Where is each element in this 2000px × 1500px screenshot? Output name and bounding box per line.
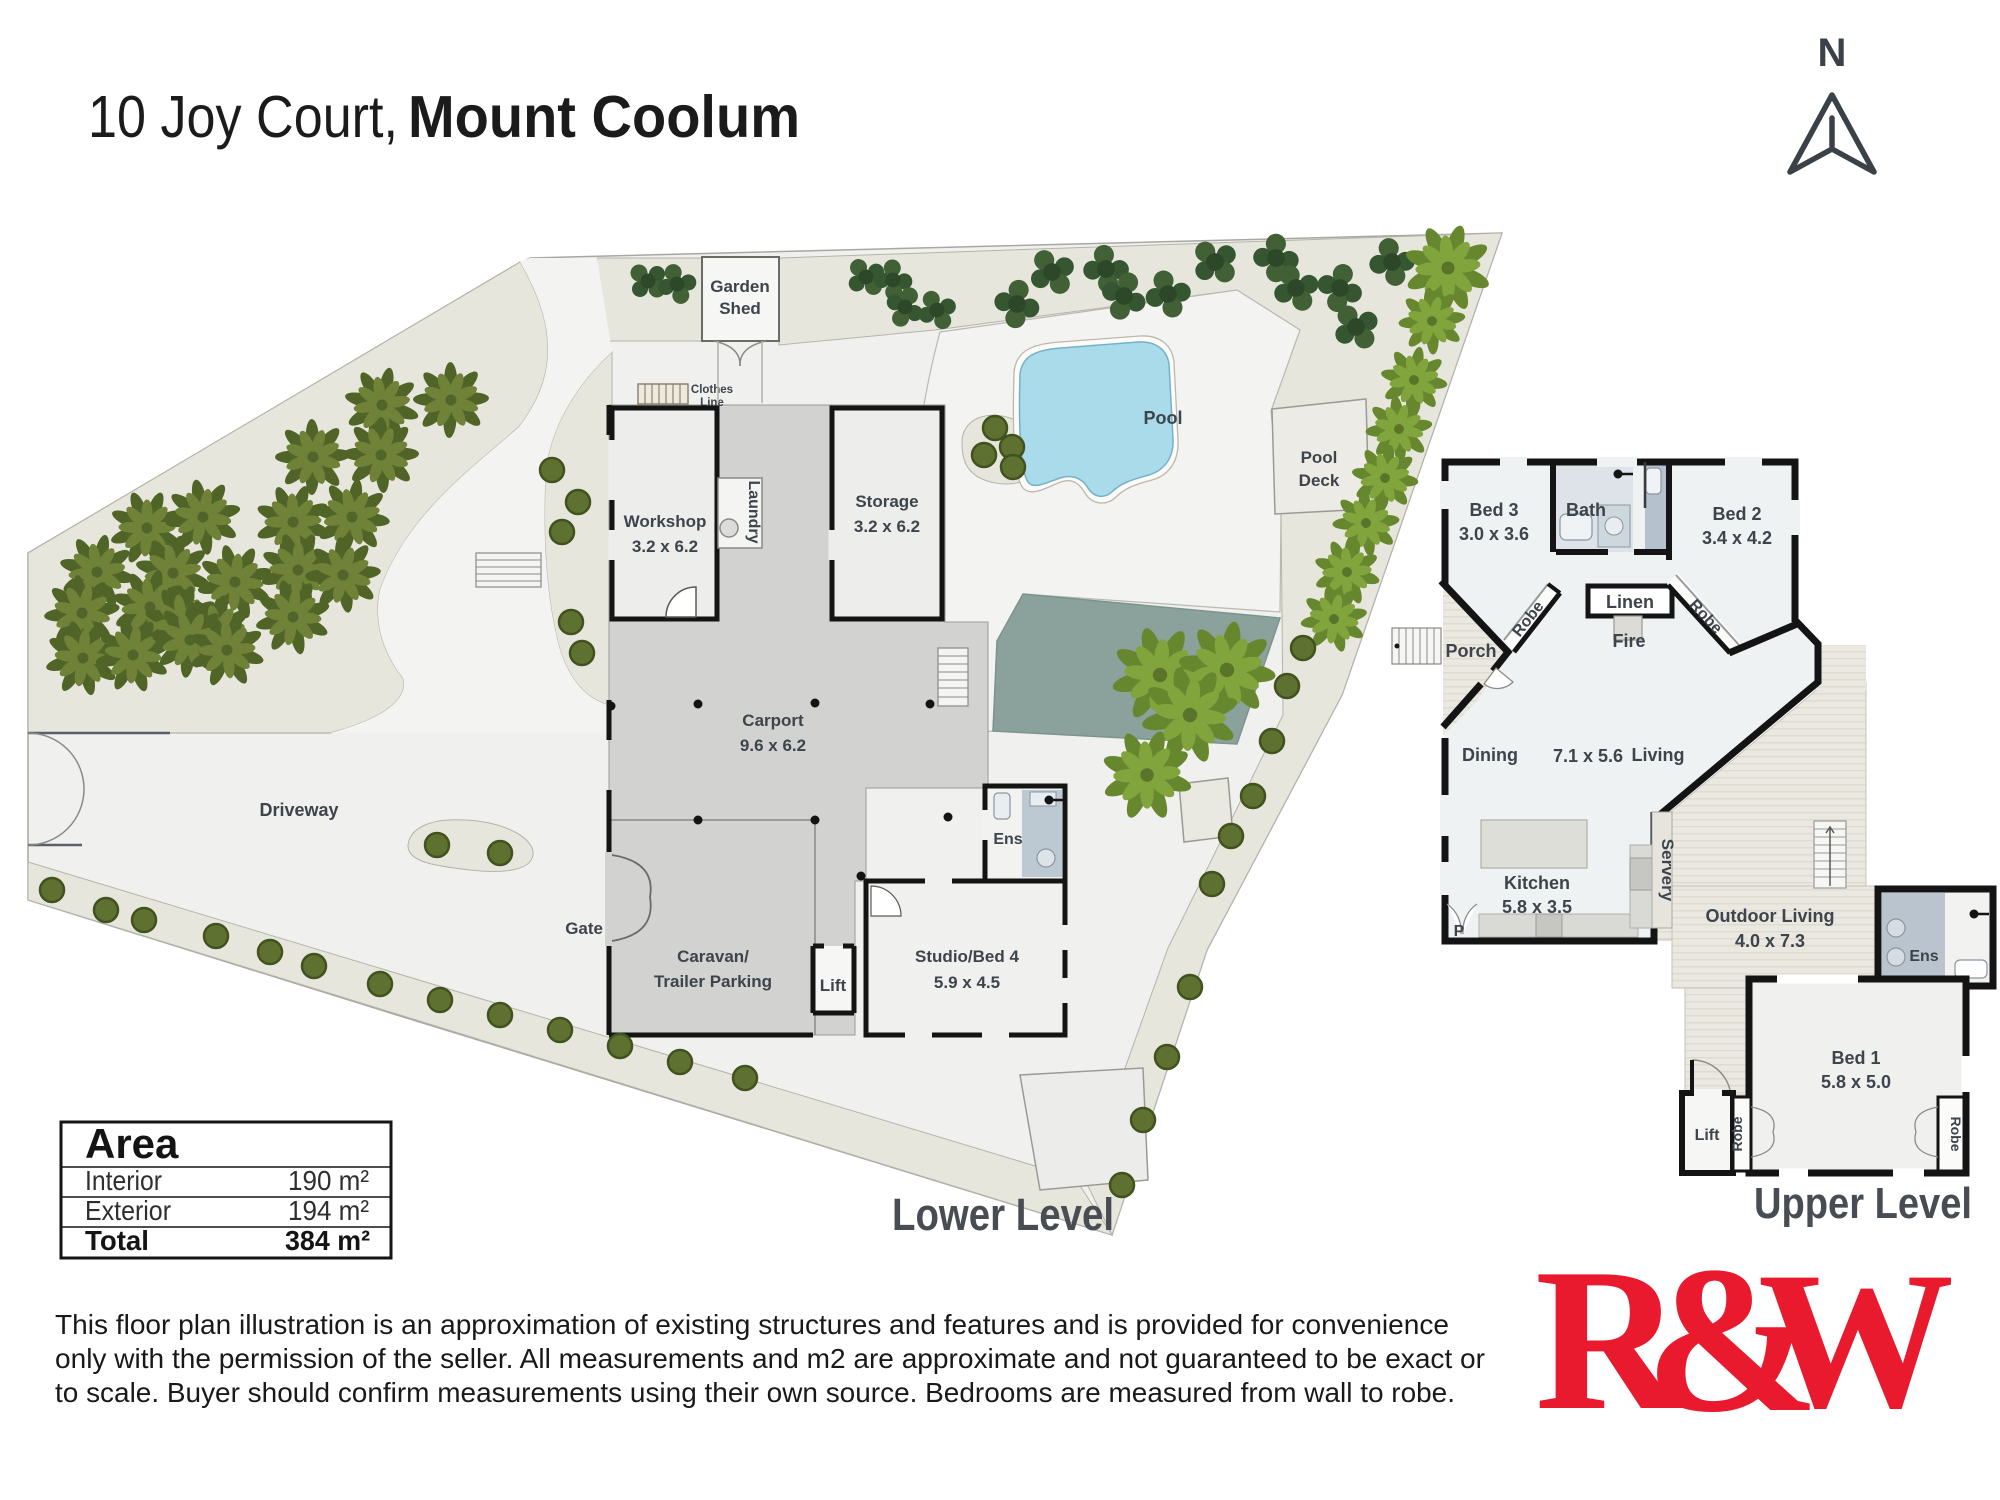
svg-text:Servery: Servery xyxy=(1658,839,1677,902)
svg-text:Ens: Ens xyxy=(993,831,1022,848)
svg-text:Clothes: Clothes xyxy=(691,384,733,396)
svg-text:Bed 2: Bed 2 xyxy=(1712,504,1761,524)
svg-text:Ens: Ens xyxy=(1909,948,1938,965)
svg-text:7.1 x 5.6: 7.1 x 5.6 xyxy=(1553,746,1623,766)
svg-text:Workshop: Workshop xyxy=(624,512,707,531)
svg-text:3.2 x 6.2: 3.2 x 6.2 xyxy=(632,537,698,556)
svg-text:190 m²: 190 m² xyxy=(288,1165,369,1196)
svg-text:Mount Coolum: Mount Coolum xyxy=(408,84,800,150)
svg-text:Fire: Fire xyxy=(1612,631,1645,651)
svg-text:Outdoor Living: Outdoor Living xyxy=(1706,906,1835,926)
svg-text:384 m²: 384 m² xyxy=(285,1225,370,1256)
svg-text:Trailer Parking: Trailer Parking xyxy=(654,972,772,991)
svg-text:Bath: Bath xyxy=(1566,500,1606,520)
svg-text:Lower Level: Lower Level xyxy=(892,1189,1114,1240)
svg-text:194 m²: 194 m² xyxy=(288,1195,369,1226)
svg-text:N: N xyxy=(1818,31,1847,75)
svg-text:Shed: Shed xyxy=(719,299,761,318)
svg-text:Exterior: Exterior xyxy=(85,1195,171,1226)
svg-text:Total: Total xyxy=(85,1225,149,1256)
svg-text:Area: Area xyxy=(85,1120,179,1167)
svg-text:Dining: Dining xyxy=(1462,745,1518,765)
svg-text:only with the permission of th: only with the permission of the seller. … xyxy=(55,1343,1485,1374)
svg-text:Deck: Deck xyxy=(1299,471,1340,490)
svg-text:to scale. Buyer should confirm: to scale. Buyer should confirm measureme… xyxy=(55,1377,1455,1408)
svg-text:Lift: Lift xyxy=(820,976,847,995)
svg-text:Lift: Lift xyxy=(1695,1127,1721,1144)
svg-text:Driveway: Driveway xyxy=(259,800,338,820)
svg-text:9.6 x 6.2: 9.6 x 6.2 xyxy=(740,736,806,755)
svg-text:Upper Level: Upper Level xyxy=(1754,1179,1972,1228)
svg-text:Storage: Storage xyxy=(855,492,918,511)
svg-text:W: W xyxy=(1758,1232,1954,1449)
svg-text:Carport: Carport xyxy=(742,711,804,730)
svg-text:Interior: Interior xyxy=(85,1165,162,1196)
svg-text:5.9 x 4.5: 5.9 x 4.5 xyxy=(934,973,1000,992)
svg-text:Robe: Robe xyxy=(1948,1117,1964,1152)
svg-text:This floor plan illustration i: This floor plan illustration is an appro… xyxy=(55,1309,1449,1340)
svg-text:Kitchen: Kitchen xyxy=(1504,873,1570,893)
svg-text:10 Joy Court,: 10 Joy Court, xyxy=(88,84,398,150)
svg-text:Pool: Pool xyxy=(1144,408,1183,428)
svg-text:5.8 x 5.0: 5.8 x 5.0 xyxy=(1821,1072,1891,1092)
svg-text:3.2 x 6.2: 3.2 x 6.2 xyxy=(854,517,920,536)
svg-text:Bed 3: Bed 3 xyxy=(1469,500,1518,520)
svg-text:Pool: Pool xyxy=(1301,448,1338,467)
svg-text:Bed 1: Bed 1 xyxy=(1831,1048,1880,1068)
svg-text:5.8 x 3.5: 5.8 x 3.5 xyxy=(1502,897,1572,917)
svg-text:Living: Living xyxy=(1632,745,1685,765)
svg-text:Caravan/: Caravan/ xyxy=(677,947,749,966)
svg-text:Robe: Robe xyxy=(1729,1116,1745,1151)
svg-text:4.0 x 7.3: 4.0 x 7.3 xyxy=(1735,931,1805,951)
svg-text:Gate: Gate xyxy=(565,919,603,938)
svg-text:P: P xyxy=(1454,923,1465,940)
svg-text:Laundry: Laundry xyxy=(745,480,762,543)
svg-text:Garden: Garden xyxy=(710,277,770,296)
svg-text:3.0 x 3.6: 3.0 x 3.6 xyxy=(1459,524,1529,544)
svg-text:3.4 x 4.2: 3.4 x 4.2 xyxy=(1702,528,1772,548)
svg-text:Linen: Linen xyxy=(1606,592,1654,612)
svg-text:Studio/Bed 4: Studio/Bed 4 xyxy=(915,947,1019,966)
svg-text:Porch: Porch xyxy=(1445,641,1496,661)
